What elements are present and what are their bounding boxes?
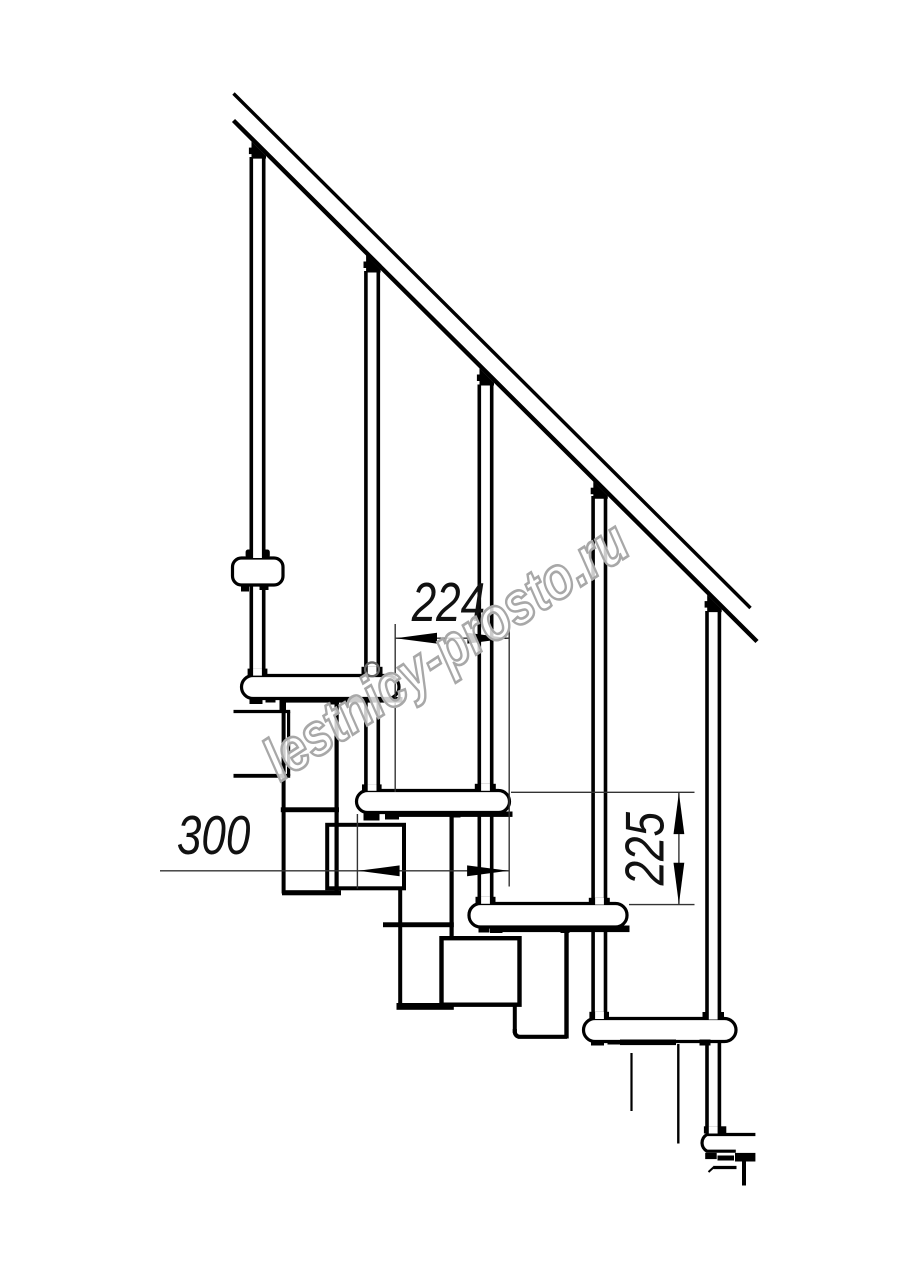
svg-text:225: 225 <box>614 812 676 887</box>
svg-text:300: 300 <box>177 804 251 866</box>
